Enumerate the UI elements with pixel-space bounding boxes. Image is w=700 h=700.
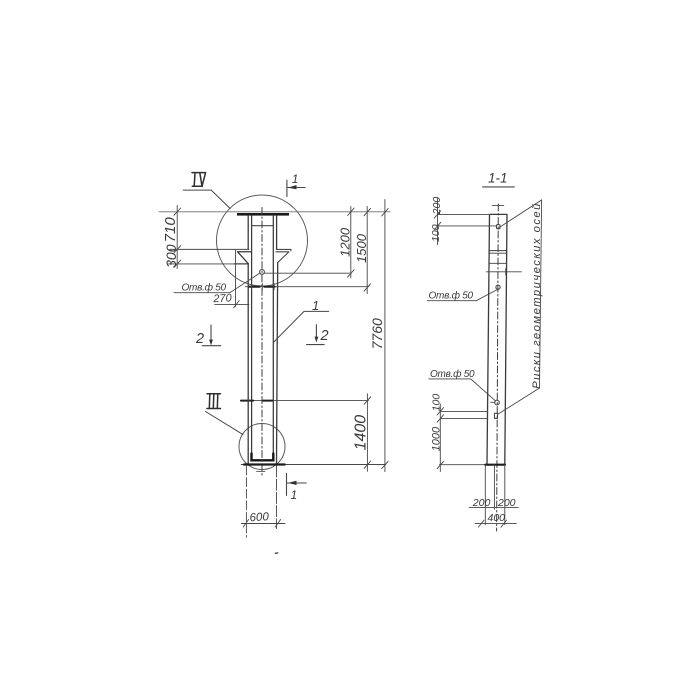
svg-text:1200: 1200	[337, 227, 352, 257]
svg-text:270: 270	[212, 292, 233, 305]
svg-text:2: 2	[195, 331, 204, 347]
svg-text:600: 600	[249, 511, 269, 524]
svg-text:1000: 1000	[431, 426, 443, 451]
svg-text:Отв.ф 50: Отв.ф 50	[429, 290, 474, 302]
svg-text:2: 2	[320, 328, 329, 344]
svg-text:100: 100	[430, 224, 442, 242]
svg-text:Отв.ф 50: Отв.ф 50	[182, 282, 227, 294]
svg-text:100: 100	[430, 394, 442, 412]
svg-text:200: 200	[497, 497, 516, 509]
svg-text:300: 300	[163, 244, 179, 268]
svg-text:710: 710	[162, 217, 179, 243]
svg-text:Отв.ф 50: Отв.ф 50	[430, 368, 475, 380]
svg-text:200: 200	[472, 497, 491, 509]
svg-text:400: 400	[488, 512, 506, 524]
svg-text:1: 1	[312, 298, 319, 313]
svg-text:1400: 1400	[353, 415, 370, 451]
svg-text:200: 200	[431, 197, 443, 216]
svg-text:1: 1	[291, 488, 298, 502]
svg-text:1: 1	[292, 172, 299, 186]
svg-text:7760: 7760	[369, 318, 385, 349]
svg-text:1-1: 1-1	[488, 171, 508, 186]
svg-text:Риски геометрических осей: Риски геометрических осей	[531, 202, 543, 389]
svg-text:1500: 1500	[354, 233, 369, 263]
